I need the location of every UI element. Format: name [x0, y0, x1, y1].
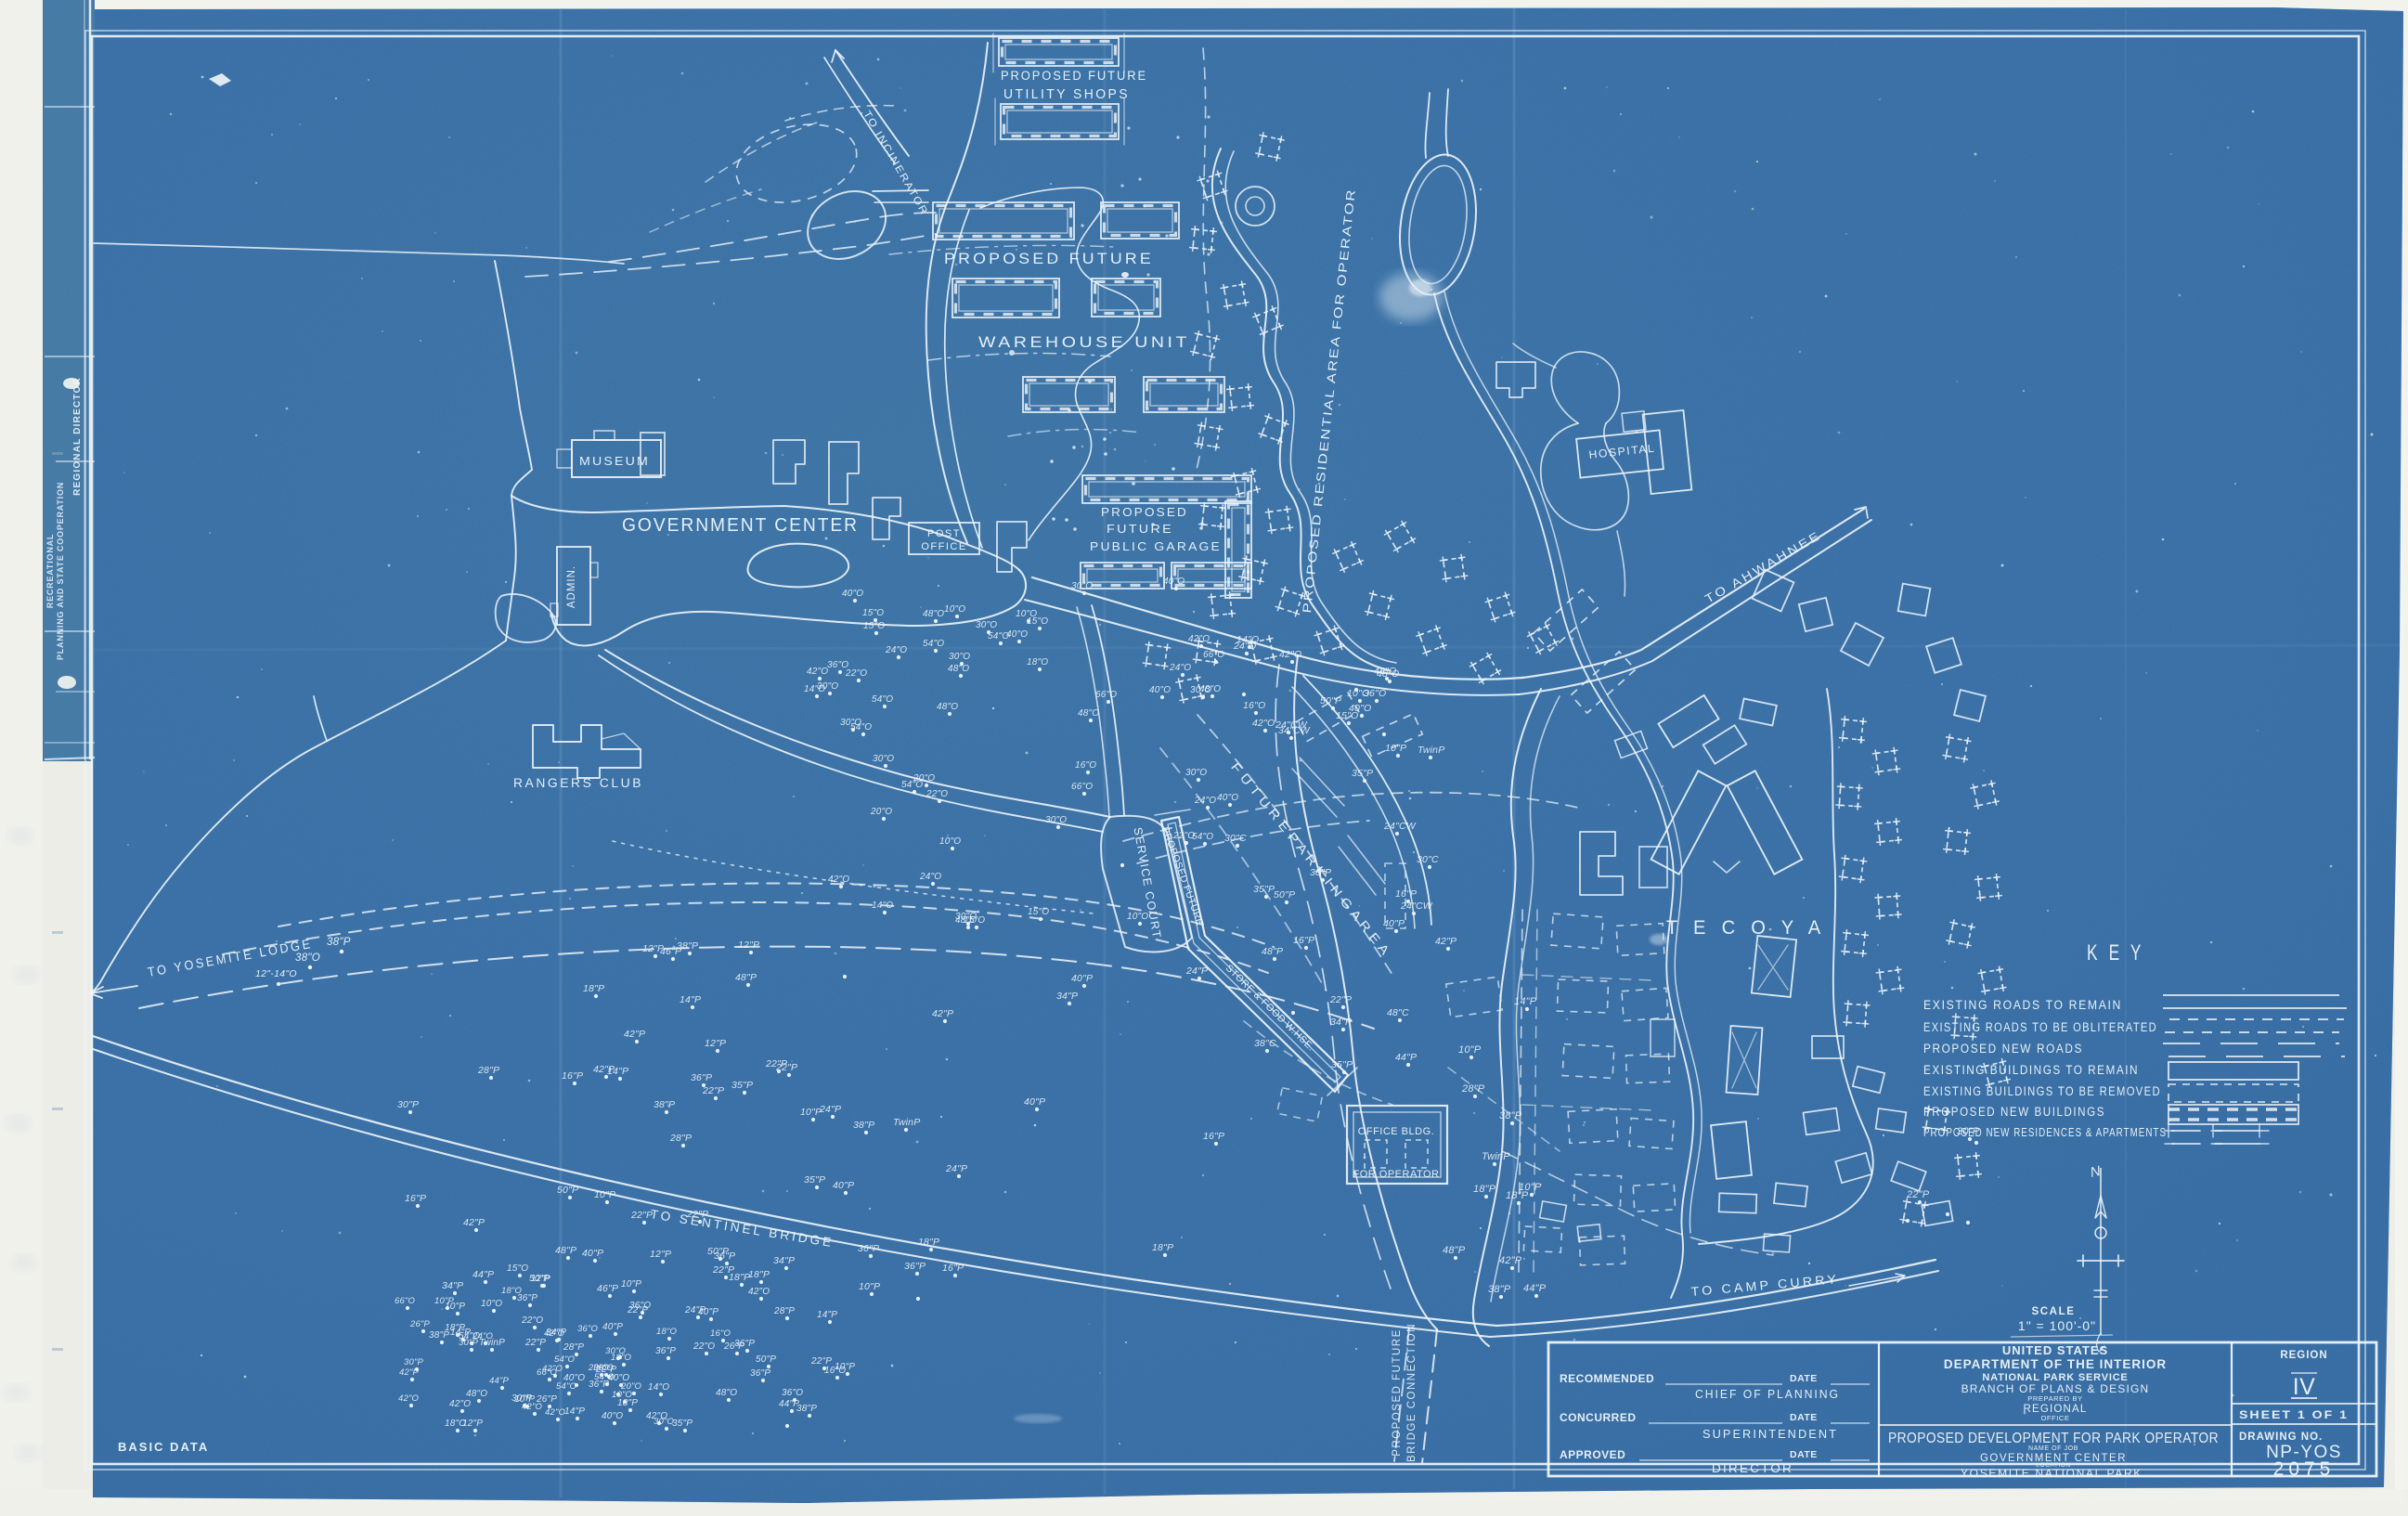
- svg-text:42"O: 42"O: [398, 1393, 420, 1404]
- svg-text:FOR OPERATOR: FOR OPERATOR: [1353, 1169, 1440, 1180]
- svg-text:20"O: 20"O: [913, 773, 935, 784]
- svg-text:26"P: 26"P: [723, 1341, 744, 1352]
- svg-text:44"P: 44"P: [1395, 1052, 1417, 1063]
- svg-text:RANGERS CLUB: RANGERS CLUB: [513, 776, 643, 790]
- svg-text:54"O: 54"O: [594, 1372, 615, 1382]
- svg-text:44"P: 44"P: [1523, 1283, 1547, 1294]
- svg-text:WAREHOUSE UNIT: WAREHOUSE UNIT: [978, 334, 1190, 351]
- svg-text:12"P: 12"P: [531, 1274, 551, 1284]
- svg-text:42"O: 42"O: [1188, 634, 1210, 644]
- svg-text:22"O: 22"O: [926, 789, 948, 799]
- svg-text:30"O: 30"O: [1185, 768, 1207, 778]
- svg-text:14"P: 14"P: [564, 1406, 585, 1417]
- svg-text:40"O: 40"O: [1163, 577, 1185, 587]
- svg-text:66"O: 66"O: [1203, 650, 1224, 660]
- svg-text:10"P: 10"P: [621, 1279, 641, 1289]
- svg-text:14"O: 14"O: [804, 684, 825, 694]
- svg-text:10"P: 10"P: [1385, 743, 1406, 754]
- svg-text:40"P: 40"P: [582, 1248, 603, 1259]
- svg-text:48"O: 48"O: [1377, 668, 1399, 680]
- svg-text:18"P: 18"P: [918, 1237, 939, 1248]
- svg-text:50"P: 50"P: [557, 1185, 578, 1196]
- svg-text:42"O: 42"O: [828, 875, 849, 885]
- svg-text:DRAWING NO.: DRAWING NO.: [2239, 1432, 2323, 1443]
- svg-text:38"P: 38"P: [1488, 1284, 1511, 1295]
- svg-text:36"O: 36"O: [782, 1388, 803, 1398]
- svg-text:40"O: 40"O: [1217, 793, 1238, 803]
- svg-text:10"O: 10"O: [939, 836, 961, 847]
- svg-text:IV: IV: [2293, 1374, 2316, 1400]
- svg-text:CHIEF OF PLANNING: CHIEF OF PLANNING: [1695, 1388, 1840, 1401]
- svg-text:10"O: 10"O: [1347, 688, 1369, 699]
- svg-text:40"O: 40"O: [1149, 685, 1171, 695]
- svg-text:OFFICE: OFFICE: [2040, 1414, 2069, 1422]
- svg-text:42"O: 42"O: [522, 1402, 543, 1412]
- svg-text:42"O: 42"O: [544, 1328, 565, 1339]
- svg-text:40"P: 40"P: [1024, 1096, 1045, 1108]
- svg-text:RECREATIONAL: RECREATIONAL: [45, 534, 55, 608]
- svg-text:30"O: 30"O: [976, 620, 997, 630]
- svg-text:48"P: 48"P: [735, 972, 757, 983]
- svg-text:16"O: 16"O: [1243, 700, 1265, 711]
- svg-text:24"O: 24"O: [1194, 796, 1216, 806]
- svg-text:SCALE: SCALE: [2032, 1306, 2076, 1317]
- svg-text:42"O: 42"O: [449, 1399, 471, 1409]
- svg-text:35"P: 35"P: [804, 1174, 825, 1186]
- svg-text:42"O: 42"O: [748, 1287, 770, 1297]
- svg-text:42"O: 42"O: [545, 1407, 566, 1418]
- svg-text:RECOMMENDED: RECOMMENDED: [1560, 1372, 1654, 1385]
- svg-text:22"P: 22"P: [686, 1209, 708, 1220]
- svg-text:24"O: 24"O: [919, 872, 941, 882]
- svg-text:FUTURE: FUTURE: [1107, 523, 1173, 536]
- svg-text:22"O: 22"O: [521, 1315, 543, 1326]
- svg-text:10"P: 10"P: [434, 1296, 455, 1306]
- svg-text:TwinP: TwinP: [1482, 1151, 1510, 1162]
- svg-text:40"P: 40"P: [1071, 973, 1093, 984]
- svg-text:22"P: 22"P: [702, 1085, 724, 1096]
- svg-text:15"O: 15"O: [1028, 907, 1049, 917]
- svg-text:35"P: 35"P: [731, 1080, 753, 1091]
- svg-text:50"P: 50"P: [1320, 695, 1341, 706]
- svg-text:24"P: 24"P: [819, 1104, 841, 1115]
- svg-text:42"P: 42"P: [1435, 936, 1456, 947]
- svg-text:35"P: 35"P: [672, 1419, 693, 1429]
- svg-text:K E Y: K E Y: [2087, 940, 2144, 965]
- svg-text:YOSEMITE NATIONAL PARK: YOSEMITE NATIONAL PARK: [1961, 1467, 2143, 1480]
- svg-text:48"O: 48"O: [923, 609, 944, 619]
- svg-text:PROPOSED DEVELOPMENT FOR PARK: PROPOSED DEVELOPMENT FOR PARK OPERATOR: [1888, 1431, 2219, 1446]
- svg-text:15"O: 15"O: [863, 621, 885, 631]
- svg-text:20"O: 20"O: [588, 1363, 610, 1373]
- svg-text:34"P: 34"P: [1056, 991, 1078, 1002]
- svg-text:44"P: 44"P: [473, 1269, 494, 1280]
- svg-text:44"P: 44"P: [779, 1399, 799, 1409]
- svg-text:48"O: 48"O: [466, 1389, 487, 1399]
- svg-text:14"P: 14"P: [680, 994, 701, 1005]
- svg-text:42"P: 42"P: [624, 1029, 645, 1040]
- svg-text:30"O: 30"O: [1045, 815, 1067, 825]
- svg-text:22"P: 22"P: [712, 1264, 734, 1276]
- svg-text:14"O: 14"O: [872, 901, 893, 911]
- svg-text:BASIC DATA: BASIC DATA: [118, 1440, 209, 1454]
- svg-text:38"P: 38"P: [1499, 1110, 1522, 1121]
- svg-text:14"P: 14"P: [817, 1310, 837, 1320]
- svg-text:14"P: 14"P: [1514, 996, 1537, 1007]
- svg-text:OFFICE BLDG.: OFFICE BLDG.: [1358, 1126, 1434, 1137]
- svg-text:16"O: 16"O: [824, 1366, 846, 1376]
- svg-text:PROPOSED FUTURE: PROPOSED FUTURE: [944, 251, 1154, 267]
- svg-text:14"O: 14"O: [648, 1382, 669, 1393]
- svg-text:50"P: 50"P: [756, 1354, 776, 1365]
- svg-text:UTILITY SHOPS: UTILITY SHOPS: [1003, 87, 1130, 102]
- svg-text:16"P: 16"P: [405, 1193, 426, 1204]
- svg-text:10"O: 10"O: [944, 604, 965, 615]
- svg-text:10"O: 10"O: [1127, 912, 1148, 922]
- svg-text:34"P: 34"P: [1330, 1017, 1352, 1028]
- svg-text:30"C: 30"C: [1417, 854, 1439, 865]
- svg-text:BRIDGE CONNECTION: BRIDGE CONNECTION: [1406, 1323, 1418, 1462]
- svg-text:42"P: 42"P: [463, 1217, 485, 1228]
- svg-text:54"O: 54"O: [988, 631, 1009, 641]
- svg-text:54"O: 54"O: [850, 722, 872, 732]
- svg-text:DATE: DATE: [1790, 1412, 1818, 1423]
- svg-text:TwinP: TwinP: [893, 1117, 920, 1128]
- svg-text:48"O: 48"O: [1199, 684, 1221, 694]
- svg-text:36"O: 36"O: [577, 1324, 599, 1334]
- svg-text:PROPOSED FUTURE: PROPOSED FUTURE: [1392, 1328, 1403, 1457]
- svg-text:16"P: 16"P: [942, 1263, 964, 1274]
- svg-text:36"P: 36"P: [750, 1368, 770, 1379]
- svg-text:18"P: 18"P: [1473, 1184, 1496, 1195]
- svg-text:DATE: DATE: [1790, 1449, 1818, 1460]
- svg-text:10"P: 10"P: [859, 1281, 880, 1292]
- svg-text:34"P: 34"P: [773, 1255, 795, 1266]
- svg-text:REGIONAL DIRECTOR: REGIONAL DIRECTOR: [72, 377, 83, 496]
- svg-text:22"O: 22"O: [693, 1341, 715, 1352]
- svg-text:30"O: 30"O: [949, 652, 970, 662]
- svg-text:2075: 2075: [2273, 1458, 2336, 1480]
- svg-text:SUPERINTENDENT: SUPERINTENDENT: [1702, 1428, 1838, 1441]
- svg-text:36"P: 36"P: [655, 1346, 676, 1356]
- svg-text:28"P: 28"P: [669, 1133, 692, 1144]
- svg-text:15"O: 15"O: [1027, 616, 1048, 627]
- svg-text:40"O: 40"O: [1006, 629, 1028, 640]
- svg-text:UNITED STATES: UNITED STATES: [2002, 1343, 2108, 1357]
- svg-text:28"P: 28"P: [1461, 1083, 1485, 1095]
- svg-text:T E C O Y A: T E C O Y A: [1666, 917, 1826, 939]
- svg-text:CONCURRED: CONCURRED: [1560, 1411, 1637, 1424]
- svg-text:18"P: 18"P: [1152, 1242, 1173, 1253]
- svg-text:PROPOSED NEW ROADS: PROPOSED NEW ROADS: [1923, 1042, 2083, 1056]
- svg-text:30"P: 30"P: [397, 1099, 419, 1110]
- svg-text:30"C: 30"C: [1224, 833, 1247, 844]
- svg-text:12"P: 12"P: [738, 939, 759, 951]
- svg-text:22"P: 22"P: [627, 1305, 648, 1315]
- svg-text:48"O: 48"O: [716, 1388, 737, 1398]
- svg-text:16"P: 16"P: [1395, 888, 1417, 900]
- svg-text:10"P: 10"P: [594, 1189, 615, 1200]
- svg-text:18"O: 18"O: [1027, 657, 1048, 667]
- svg-text:40"P: 40"P: [1383, 918, 1405, 929]
- svg-text:18"O: 18"O: [445, 1419, 466, 1429]
- svg-text:12"P: 12"P: [642, 943, 664, 954]
- svg-text:12"P: 12"P: [705, 1038, 726, 1049]
- svg-text:42"O: 42"O: [807, 667, 828, 677]
- svg-text:PROPOSED FUTURE: PROPOSED FUTURE: [1001, 69, 1147, 83]
- svg-text:PUBLIC GARAGE: PUBLIC GARAGE: [1090, 540, 1222, 553]
- svg-text:54"O: 54"O: [872, 694, 893, 705]
- svg-text:36"P: 36"P: [714, 1250, 735, 1262]
- svg-text:REGION: REGION: [2280, 1350, 2327, 1361]
- svg-text:EXISTING ROADS TO BE OBLITERAT: EXISTING ROADS TO BE OBLITERATED: [1923, 1020, 2157, 1034]
- svg-text:35"P: 35"P: [1253, 884, 1275, 895]
- svg-text:14"P: 14"P: [607, 1066, 628, 1077]
- svg-text:22"P: 22"P: [1329, 994, 1352, 1005]
- svg-text:54"O: 54"O: [923, 639, 944, 649]
- svg-text:22"P: 22"P: [765, 1058, 787, 1069]
- svg-text:48"C: 48"C: [1387, 1007, 1409, 1018]
- svg-text:24"O: 24"O: [1169, 663, 1191, 673]
- svg-text:54"O: 54"O: [556, 1381, 577, 1392]
- svg-text:1" = 100'-0": 1" = 100'-0": [2018, 1318, 2096, 1333]
- svg-text:38"O: 38"O: [295, 952, 320, 964]
- svg-text:66"O: 66"O: [1095, 690, 1117, 700]
- svg-text:36"P: 36"P: [691, 1072, 712, 1083]
- svg-text:42"O: 42"O: [542, 1364, 563, 1374]
- svg-text:15"O: 15"O: [507, 1263, 528, 1274]
- svg-text:34"CW: 34"CW: [1278, 725, 1311, 736]
- svg-text:PROPOSED: PROPOSED: [1101, 506, 1188, 519]
- svg-text:40"O: 40"O: [602, 1411, 623, 1421]
- svg-text:TwinP: TwinP: [1418, 745, 1444, 756]
- svg-text:38"P: 38"P: [853, 1120, 874, 1131]
- svg-text:12"-14"O: 12"-14"O: [255, 968, 297, 979]
- svg-text:40"P: 40"P: [833, 1180, 854, 1191]
- svg-text:38"P: 38"P: [327, 937, 351, 948]
- svg-text:BRANCH OF PLANS & DESIGN: BRANCH OF PLANS & DESIGN: [1961, 1382, 2150, 1395]
- svg-text:40"P: 40"P: [602, 1322, 623, 1332]
- svg-text:SHEET 1 OF 1: SHEET 1 OF 1: [2239, 1410, 2349, 1421]
- svg-text:PROPOSED NEW BUILDINGS: PROPOSED NEW BUILDINGS: [1923, 1105, 2105, 1119]
- svg-text:35"P: 35"P: [1352, 768, 1373, 779]
- svg-text:DIRECTOR: DIRECTOR: [1712, 1462, 1793, 1475]
- svg-text:10"P: 10"P: [1458, 1044, 1482, 1056]
- svg-text:30"O: 30"O: [605, 1346, 627, 1356]
- svg-text:14"O: 14"O: [1236, 634, 1259, 645]
- svg-text:24"P: 24"P: [945, 1163, 967, 1174]
- svg-text:30"O: 30"O: [1071, 581, 1093, 591]
- svg-text:66"O: 66"O: [395, 1296, 416, 1306]
- svg-text:42"P: 42"P: [1499, 1255, 1522, 1266]
- svg-text:12"P: 12"P: [650, 1249, 671, 1260]
- svg-text:66"O: 66"O: [1071, 782, 1093, 792]
- svg-text:DEPARTMENT OF THE INTERIOR: DEPARTMENT OF THE INTERIOR: [1944, 1357, 2167, 1371]
- svg-text:18"O: 18"O: [501, 1286, 523, 1296]
- svg-text:28"P: 28"P: [477, 1065, 499, 1076]
- svg-text:44"P: 44"P: [489, 1376, 510, 1386]
- svg-text:24"CW: 24"CW: [1383, 821, 1417, 832]
- svg-text:EXISTING BUILDINGS TO REMAIN: EXISTING BUILDINGS TO REMAIN: [1923, 1063, 2139, 1077]
- svg-text:40"O: 40"O: [842, 589, 863, 599]
- svg-text:48"O: 48"O: [937, 702, 958, 712]
- svg-text:38"P: 38"P: [429, 1330, 449, 1341]
- svg-text:42"P: 42"P: [932, 1008, 953, 1019]
- svg-text:POST: POST: [927, 528, 961, 539]
- svg-text:28"P: 28"P: [563, 1342, 584, 1353]
- svg-text:EXISTING BUILDINGS TO BE REMOV: EXISTING BUILDINGS TO BE REMOVED: [1923, 1084, 2161, 1098]
- svg-text:24"O: 24"O: [885, 645, 907, 655]
- svg-text:46"P: 46"P: [597, 1283, 618, 1294]
- svg-text:PREPARED BY: PREPARED BY: [2027, 1394, 2082, 1403]
- svg-text:18"O: 18"O: [656, 1327, 678, 1337]
- svg-text:36"P: 36"P: [858, 1243, 879, 1254]
- svg-text:PLANNING AND STATE COOPERATION: PLANNING AND STATE COOPERATION: [56, 482, 65, 660]
- svg-text:38"P: 38"P: [654, 1099, 675, 1110]
- svg-text:16"P: 16"P: [562, 1070, 583, 1082]
- svg-text:50"P: 50"P: [1274, 889, 1295, 901]
- svg-text:24"P: 24"P: [684, 1305, 706, 1315]
- svg-text:GOVERNMENT CENTER: GOVERNMENT CENTER: [622, 515, 859, 536]
- svg-text:16"O: 16"O: [710, 1328, 731, 1339]
- svg-text:10"P: 10"P: [800, 1107, 822, 1118]
- svg-text:MUSEUM: MUSEUM: [579, 454, 650, 468]
- svg-text:26"P: 26"P: [409, 1319, 431, 1329]
- svg-text:10"P: 10"P: [1519, 1182, 1542, 1193]
- svg-text:38"C: 38"C: [1254, 1038, 1276, 1049]
- svg-text:42"O: 42"O: [1279, 649, 1301, 660]
- svg-text:15"O: 15"O: [1336, 710, 1358, 721]
- svg-text:30"O: 30"O: [654, 1417, 675, 1427]
- svg-text:42"O: 42"O: [1252, 718, 1275, 729]
- svg-text:48"P: 48"P: [555, 1245, 576, 1256]
- svg-text:54"O: 54"O: [1192, 832, 1213, 842]
- svg-text:34"P: 34"P: [442, 1280, 463, 1291]
- svg-text:48"O: 48"O: [948, 664, 969, 674]
- svg-text:ADMIN.: ADMIN.: [566, 565, 577, 608]
- svg-text:10"O: 10"O: [481, 1299, 502, 1309]
- svg-text:48"P: 48"P: [1443, 1245, 1466, 1256]
- svg-text:APPROVED: APPROVED: [1560, 1448, 1625, 1461]
- svg-text:48"P: 48"P: [1262, 946, 1283, 957]
- svg-text:24"CW: 24"CW: [1400, 901, 1433, 912]
- svg-text:30"O: 30"O: [955, 912, 977, 922]
- svg-text:38"P: 38"P: [1310, 867, 1331, 878]
- svg-text:22"P: 22"P: [630, 1210, 653, 1221]
- svg-text:OFFICE: OFFICE: [921, 541, 966, 552]
- svg-text:35"P: 35"P: [1331, 1059, 1353, 1070]
- svg-text:24"O: 24"O: [472, 1331, 494, 1341]
- svg-text:20"O: 20"O: [620, 1381, 642, 1392]
- svg-text:20"O: 20"O: [870, 807, 892, 817]
- svg-text:38"P: 38"P: [796, 1404, 817, 1414]
- svg-text:16"O: 16"O: [1075, 760, 1096, 771]
- svg-text:30"P: 30"P: [1957, 1126, 1980, 1137]
- svg-text:22"P: 22"P: [1906, 1189, 1930, 1200]
- svg-text:28"P: 28"P: [773, 1306, 795, 1316]
- svg-text:36"P: 36"P: [904, 1261, 926, 1272]
- svg-text:30"O: 30"O: [873, 754, 894, 764]
- svg-text:36"O: 36"O: [827, 660, 848, 670]
- svg-text:18"P: 18"P: [748, 1269, 770, 1280]
- svg-text:18"P: 18"P: [583, 983, 604, 994]
- svg-text:24"P: 24"P: [1185, 965, 1208, 977]
- svg-text:16"P: 16"P: [1203, 1131, 1224, 1142]
- svg-text:30"P: 30"P: [404, 1357, 424, 1367]
- svg-text:16"P: 16"P: [1293, 935, 1314, 946]
- svg-text:15"O: 15"O: [862, 608, 884, 618]
- svg-text:EXISTING ROADS TO REMAIN: EXISTING ROADS TO REMAIN: [1923, 998, 2122, 1012]
- svg-text:48"O: 48"O: [1078, 708, 1099, 719]
- svg-text:22"P: 22"P: [524, 1338, 546, 1348]
- svg-text:DATE: DATE: [1790, 1373, 1818, 1384]
